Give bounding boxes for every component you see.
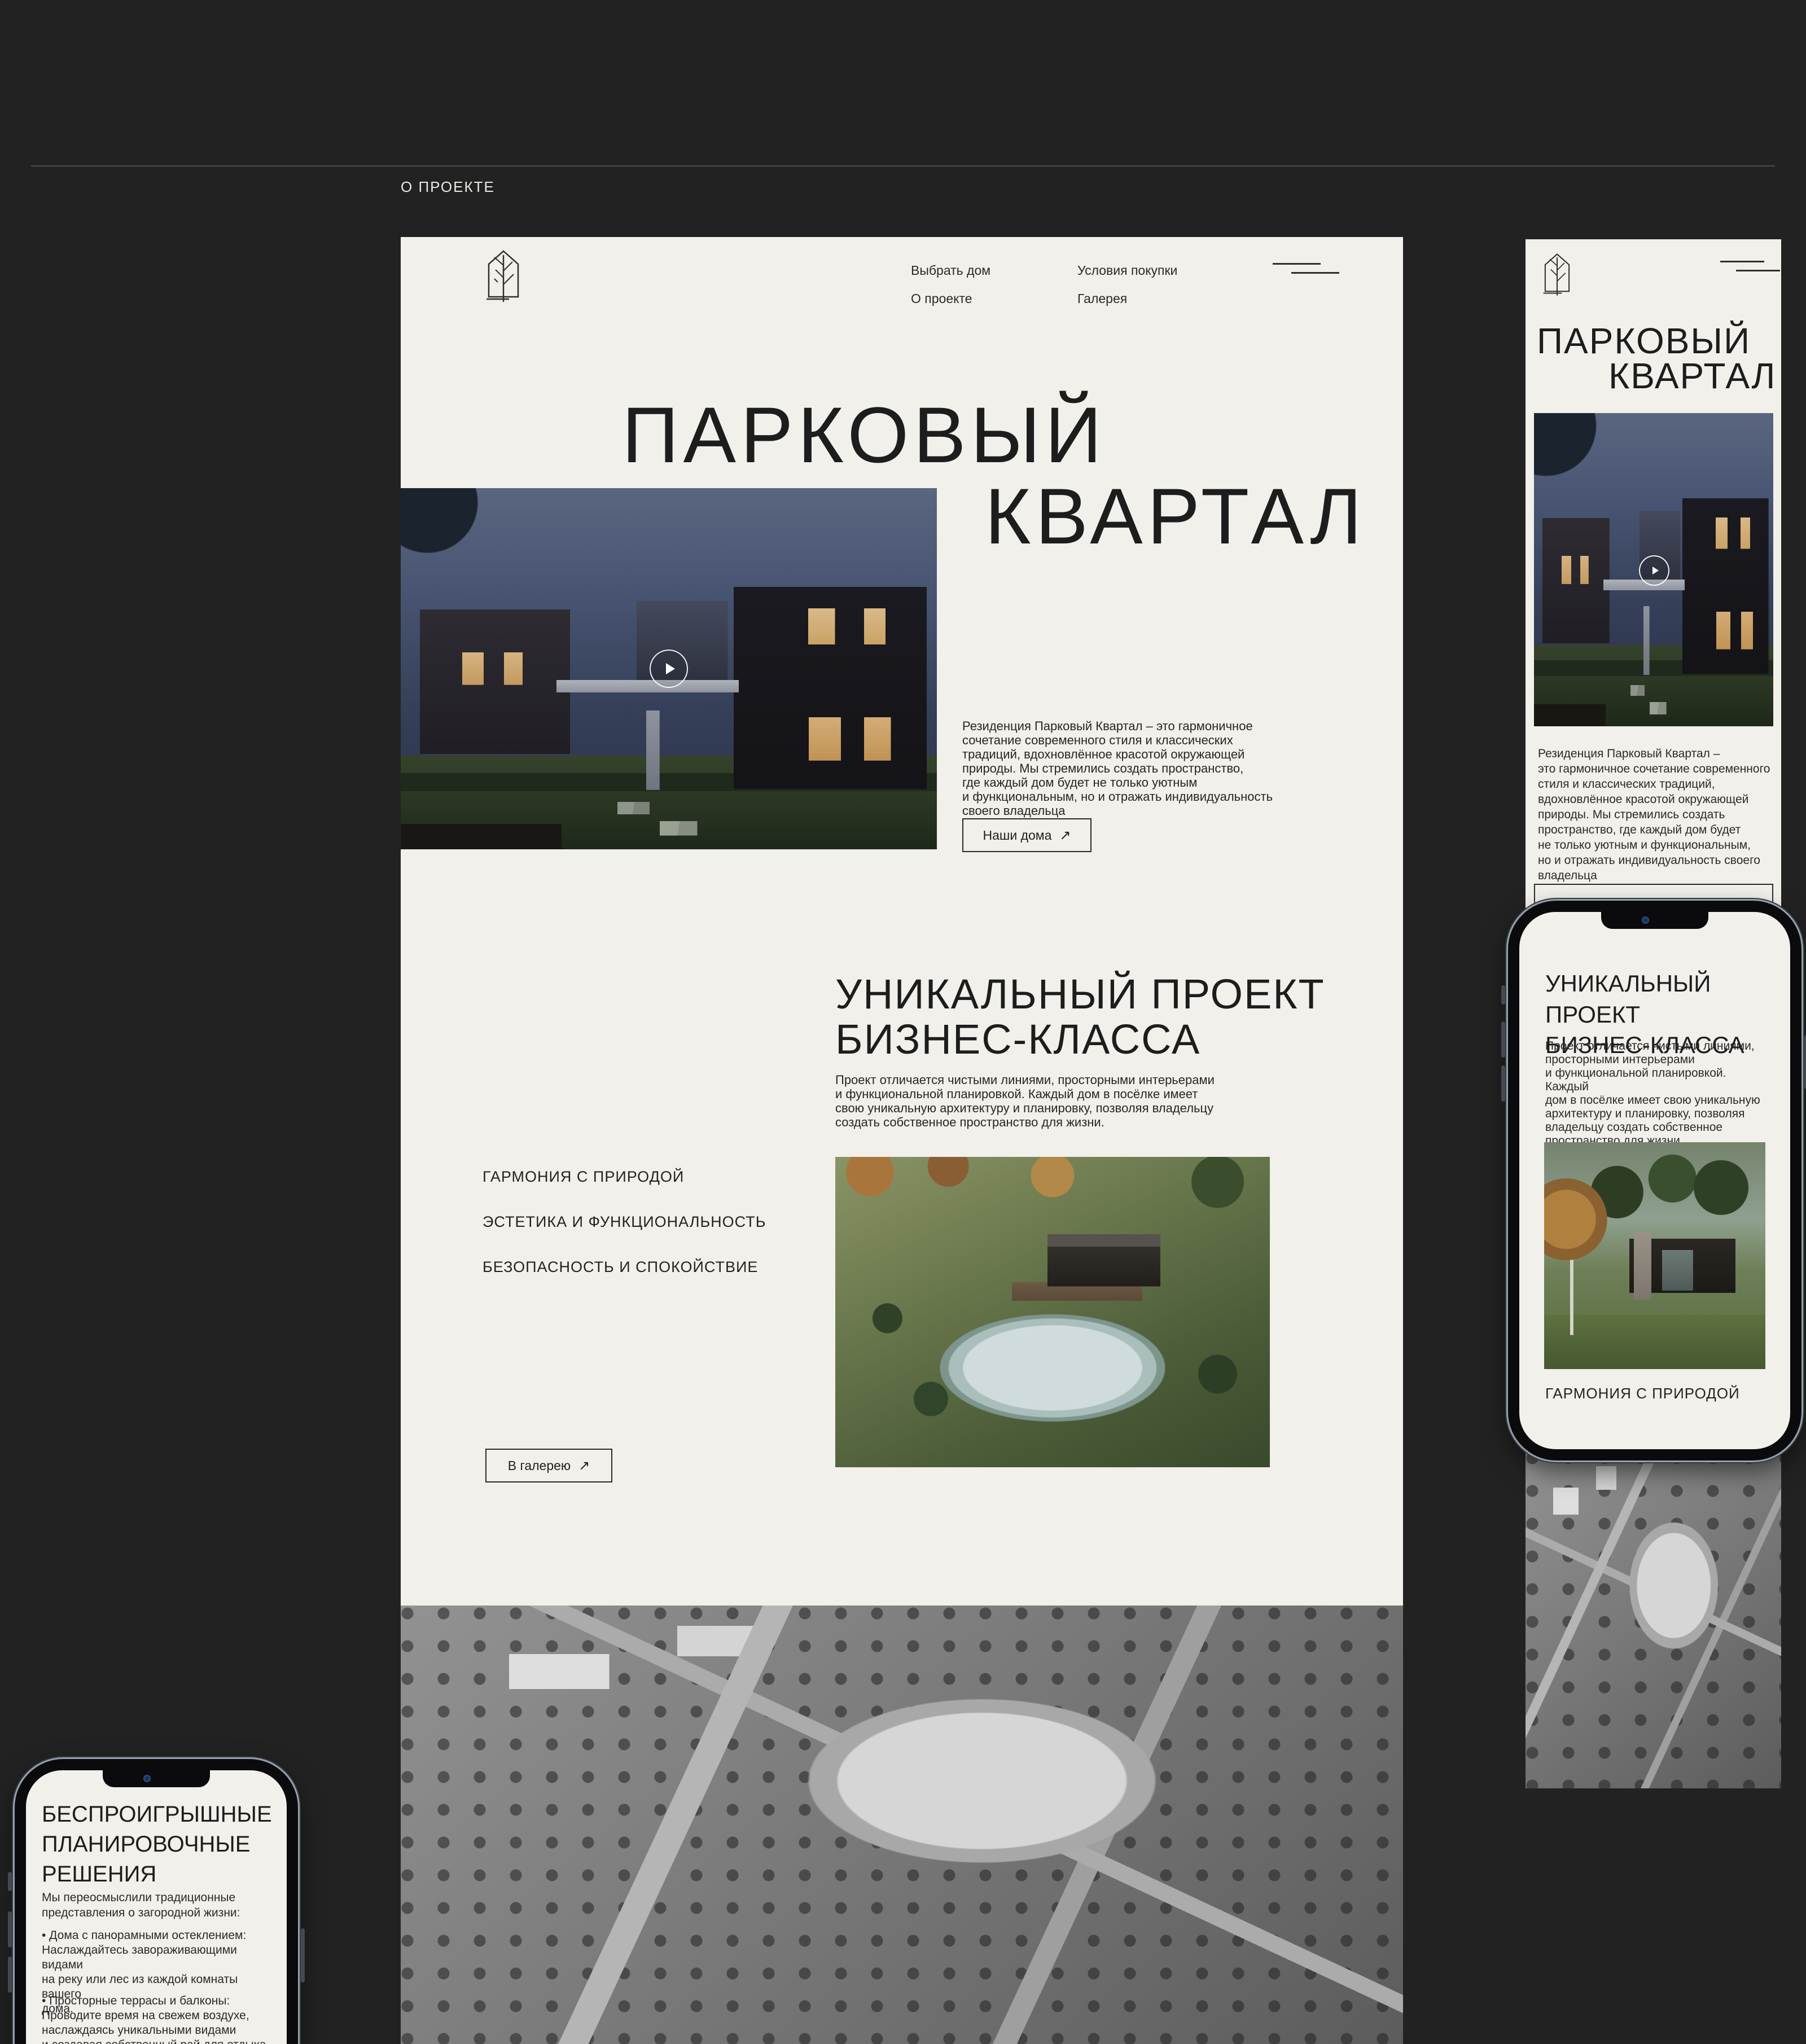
nav-purchase-terms[interactable]: Условия покупки (1077, 263, 1177, 278)
phone-plans-intro: Мы переосмыслили традиционные представле… (42, 1890, 274, 1920)
bw-park-photo (401, 1606, 1403, 2044)
volume-up-button (1501, 1021, 1505, 1058)
to-gallery-button[interactable]: В галерею ↗ (485, 1449, 612, 1482)
strip-hero-photo (1534, 413, 1773, 726)
strip-title-line1: ПАРКОВЫЙ (1537, 323, 1751, 359)
menu-burger-icon[interactable] (1720, 258, 1782, 273)
play-icon (666, 663, 675, 674)
iphone-right-screen: УНИКАЛЬНЫЙ ПРОЕКТ БИЗНЕС-КЛАССА Проект о… (1519, 912, 1790, 1449)
play-button[interactable] (650, 650, 688, 688)
mute-switch (1501, 985, 1505, 1005)
volume-down-button (8, 1957, 12, 1993)
volume-down-button (1501, 1065, 1505, 1102)
section-label: О ПРОЕКТЕ (401, 178, 495, 196)
phone-plans-bullet-2: • Просторные террасы и балконы: Проводит… (42, 1994, 274, 2044)
feature-safety: БЕЗОПАСНОСТЬ И СПОКОЙСТВИЕ (483, 1258, 758, 1276)
strip-title-line2: КВАРТАЛ (1608, 358, 1776, 394)
burger-line-top (1720, 261, 1764, 262)
unique-title-line2: БИЗНЕС-КЛАССА (835, 1019, 1200, 1060)
feature-harmony: ГАРМОНИЯ С ПРИРОДОЙ (483, 1168, 684, 1186)
nav-choose-house[interactable]: Выбрать дом (911, 263, 990, 278)
to-gallery-label: В галерею (508, 1458, 571, 1473)
phone-plans-title: БЕСПРОИГРЫШНЫЕ ПЛАНИРОВОЧНЫЕ РЕШЕНИЯ (42, 1800, 272, 1889)
arrow-up-right-icon: ↗ (1059, 827, 1071, 844)
iphone-mockup-left: БЕСПРОИГРЫШНЫЕ ПЛАНИРОВОЧНЫЕ РЕШЕНИЯ Мы … (15, 1759, 298, 2044)
burger-line-bottom (1736, 270, 1780, 271)
strip-about-paragraph: Резиденция Парковый Квартал – это гармон… (1538, 746, 1778, 883)
feature-esthetics: ЭСТЕТИКА И ФУНКЦИОНАЛЬНОСТЬ (483, 1213, 766, 1231)
our-homes-button[interactable]: Наши дома ↗ (962, 818, 1092, 852)
burger-line-top (1273, 263, 1321, 265)
front-camera-icon (1642, 916, 1649, 924)
about-paragraph: Резиденция Парковый Квартал – это гармон… (962, 719, 1312, 818)
hero-photo-dusk-houses (401, 488, 937, 849)
nav-about-project[interactable]: О проекте (911, 291, 972, 306)
logo-house-tree-icon[interactable] (1542, 253, 1572, 297)
play-button[interactable] (1639, 555, 1669, 586)
volume-up-button (8, 1911, 12, 1947)
front-camera-icon (143, 1775, 151, 1782)
desktop-mockup: Выбрать дом О проекте Условия покупки Га… (401, 237, 1403, 2044)
play-icon (1652, 567, 1659, 574)
unique-title-line1: УНИКАЛЬНЫЙ ПРОЕКТ (835, 973, 1325, 1015)
arrow-up-right-icon: ↗ (578, 1458, 590, 1474)
phone-unique-paragraph: Проект отличается чистыми линиями, прост… (1545, 1039, 1771, 1148)
aerial-lake-photo (835, 1157, 1270, 1467)
notch (1601, 912, 1708, 929)
logo-house-tree-icon[interactable] (485, 249, 521, 304)
notch (103, 1770, 210, 1787)
strip-bw-park-photo (1526, 1450, 1781, 1788)
nav-gallery[interactable]: Галерея (1077, 291, 1127, 306)
top-divider (31, 165, 1775, 166)
our-homes-label: Наши дома (983, 828, 1051, 843)
iphone-mockup-right: УНИКАЛЬНЫЙ ПРОЕКТ БИЗНЕС-КЛАССА Проект о… (1508, 901, 1801, 1460)
burger-line-bottom (1291, 272, 1339, 274)
phone-caption-harmony: ГАРМОНИЯ С ПРИРОДОЙ (1545, 1385, 1740, 1402)
portfolio-canvas: О ПРОЕКТЕ Выбрать дом О проекте Условия … (0, 0, 1806, 2044)
mute-switch (8, 1872, 12, 1891)
iphone-left-screen: БЕСПРОИГРЫШНЫЕ ПЛАНИРОВОЧНЫЕ РЕШЕНИЯ Мы … (26, 1770, 287, 2044)
phone-house-photo (1544, 1142, 1765, 1369)
hero-title-line2: КВАРТАЛ (985, 477, 1366, 556)
menu-burger-icon[interactable] (1273, 260, 1346, 277)
unique-paragraph: Проект отличается чистыми линиями, прост… (835, 1073, 1242, 1129)
power-button (301, 1928, 305, 1982)
hero-title-line1: ПАРКОВЫЙ (622, 396, 1106, 475)
